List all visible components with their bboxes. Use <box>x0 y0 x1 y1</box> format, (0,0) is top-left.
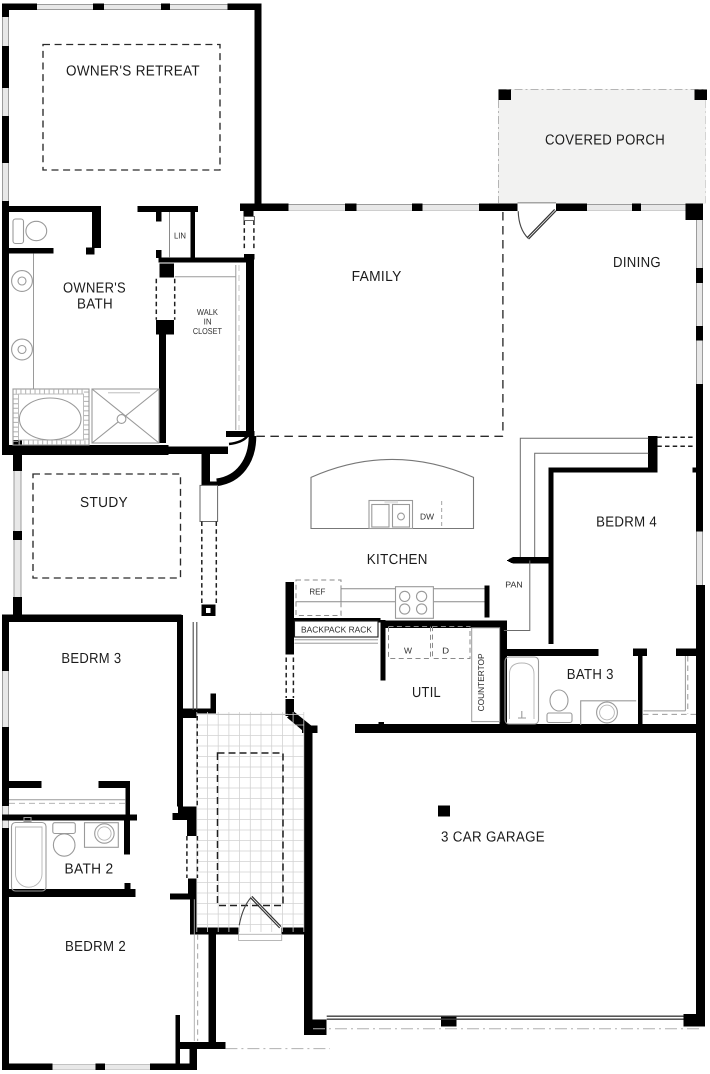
svg-text:BATH: BATH <box>77 297 113 313</box>
svg-text:BEDRM 3: BEDRM 3 <box>61 651 121 667</box>
svg-text:STUDY: STUDY <box>80 495 128 511</box>
svg-text:BEDRM 2: BEDRM 2 <box>65 939 126 955</box>
svg-text:COVERED PORCH: COVERED PORCH <box>545 133 665 149</box>
svg-text:D: D <box>442 646 449 656</box>
svg-text:COUNTERTOP: COUNTERTOP <box>476 653 486 711</box>
svg-text:FAMILY: FAMILY <box>352 269 402 285</box>
svg-text:OWNER'S RETREAT: OWNER'S RETREAT <box>66 64 200 80</box>
svg-text:REF: REF <box>309 587 325 597</box>
svg-text:3 CAR GARAGE: 3 CAR GARAGE <box>441 830 545 846</box>
svg-text:OWNER'S: OWNER'S <box>63 281 126 297</box>
svg-text:CLOSET: CLOSET <box>193 326 223 336</box>
svg-text:KITCHEN: KITCHEN <box>367 552 428 568</box>
svg-text:UTIL: UTIL <box>412 685 441 701</box>
svg-text:IN: IN <box>204 317 212 327</box>
svg-text:BEDRM 4: BEDRM 4 <box>596 515 657 531</box>
svg-text:BACKPACK RACK: BACKPACK RACK <box>301 625 372 635</box>
svg-text:DW: DW <box>420 512 435 522</box>
svg-text:PAN: PAN <box>505 580 522 590</box>
svg-text:BATH 2: BATH 2 <box>65 862 114 878</box>
svg-text:DINING: DINING <box>613 255 661 271</box>
svg-text:W: W <box>404 646 413 656</box>
svg-text:BATH 3: BATH 3 <box>567 667 614 683</box>
svg-text:LIN: LIN <box>174 231 186 241</box>
svg-text:WALK: WALK <box>197 307 218 317</box>
